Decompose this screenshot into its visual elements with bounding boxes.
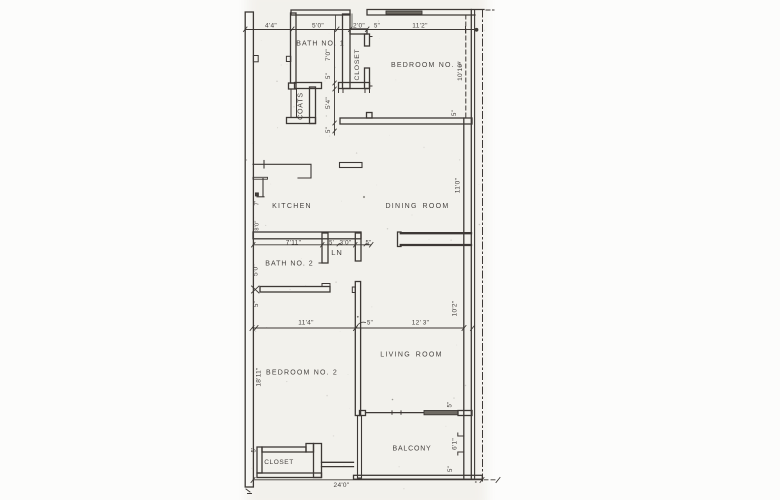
svg-text:CLOSET: CLOSET [264, 459, 294, 466]
svg-text:11'0": 11'0" [455, 177, 462, 193]
svg-text:BALCONY: BALCONY [392, 446, 431, 453]
svg-text:BEDROOM NO. 1: BEDROOM NO. 1 [391, 62, 463, 69]
svg-text:DINING ROOM: DINING ROOM [385, 203, 449, 210]
svg-text:10'2": 10'2" [452, 300, 459, 316]
svg-text:5": 5" [367, 321, 373, 327]
svg-text:7': 7' [255, 200, 261, 205]
svg-text:5": 5" [448, 466, 454, 472]
svg-text:5": 5" [452, 110, 458, 116]
svg-text:5'0": 5'0" [253, 264, 260, 276]
svg-text:6'1": 6'1" [452, 438, 459, 450]
svg-text:2'0": 2'0" [353, 23, 365, 30]
svg-text:BEDROOM NO. 2: BEDROOM NO. 2 [266, 370, 338, 377]
svg-text:BATH NO. 1: BATH NO. 1 [296, 41, 344, 48]
svg-text:5": 5" [326, 73, 332, 79]
svg-text:CLOSET: CLOSET [354, 49, 361, 81]
svg-text:KITCHEN: KITCHEN [272, 203, 312, 210]
svg-text:18'11": 18'11" [256, 367, 263, 387]
svg-text:5': 5' [252, 447, 258, 452]
svg-text:5'0": 5'0" [312, 23, 324, 30]
svg-text:7'11": 7'11" [286, 239, 302, 246]
svg-text:5": 5" [254, 301, 260, 307]
svg-text:5": 5" [448, 401, 454, 407]
svg-text:5': 5' [329, 240, 334, 246]
svg-text:10'10": 10'10" [457, 61, 464, 81]
svg-text:5": 5" [374, 24, 380, 30]
svg-text:5": 5" [365, 240, 371, 246]
svg-text:11'4": 11'4" [298, 320, 314, 327]
svg-text:LIVING ROOM: LIVING ROOM [380, 352, 443, 359]
svg-text:3'0": 3'0" [340, 239, 352, 246]
svg-text:COATS: COATS [298, 92, 305, 120]
svg-text:BATH NO. 2: BATH NO. 2 [265, 261, 313, 268]
svg-text:5": 5" [326, 127, 332, 133]
svg-text:8'0": 8'0" [255, 220, 261, 230]
svg-text:7'0": 7'0" [325, 49, 332, 61]
svg-text:24'0": 24'0" [334, 482, 350, 489]
svg-text:12' 3": 12' 3" [412, 320, 430, 327]
svg-text:5'4": 5'4" [325, 97, 332, 109]
svg-text:11'2": 11'2" [412, 23, 428, 30]
svg-text:LN: LN [331, 248, 343, 257]
svg-text:4'4": 4'4" [265, 23, 277, 30]
